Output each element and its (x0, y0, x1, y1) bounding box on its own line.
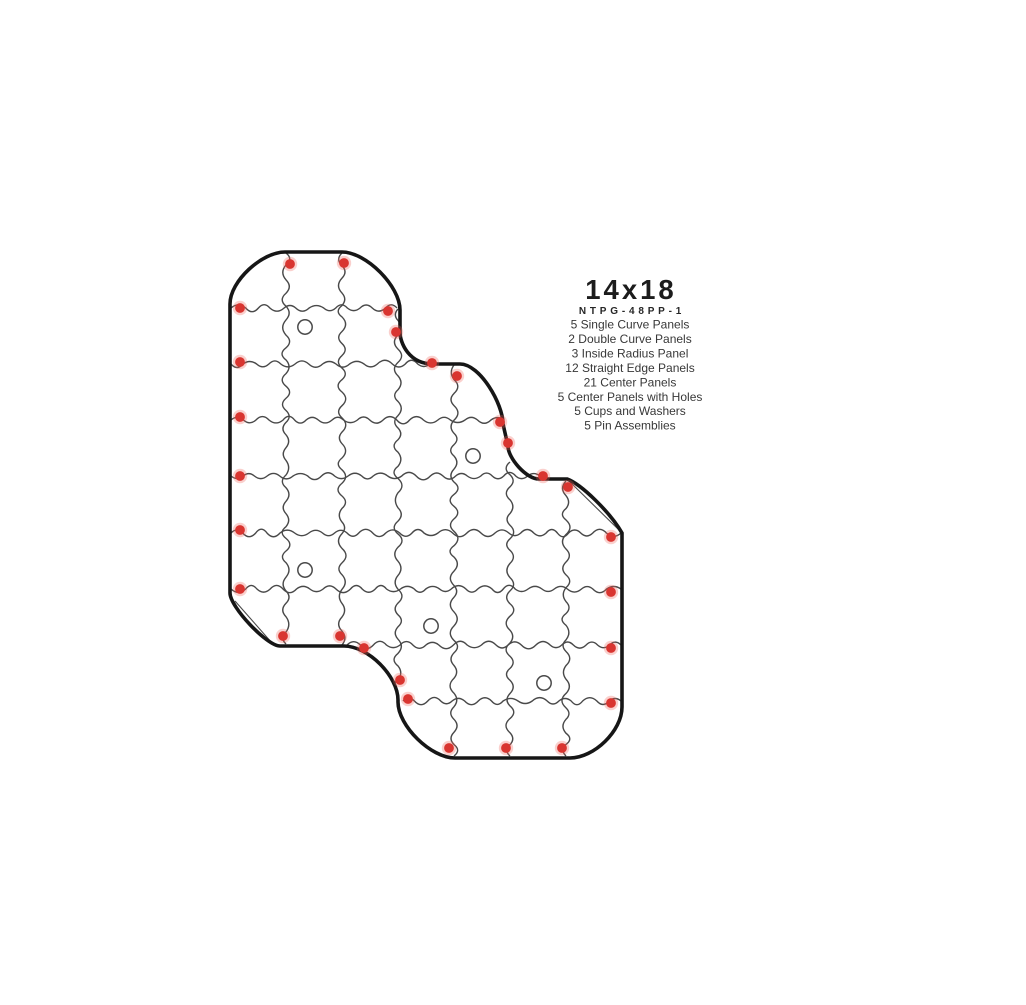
svg-text:14x18: 14x18 (585, 274, 676, 305)
svg-text:NTPG-48PP-1: NTPG-48PP-1 (579, 306, 685, 317)
svg-text:2 Double Curve Panels: 2 Double Curve Panels (568, 332, 691, 346)
svg-text:5 Cups and Washers: 5 Cups and Washers (574, 404, 686, 418)
svg-text:3 Inside Radius Panel: 3 Inside Radius Panel (572, 347, 689, 361)
svg-text:5 Pin Assemblies: 5 Pin Assemblies (584, 419, 675, 433)
svg-text:5 Center Panels with Holes: 5 Center Panels with Holes (558, 390, 703, 404)
svg-text:5 Single Curve Panels: 5 Single Curve Panels (571, 318, 690, 332)
svg-text:12 Straight Edge Panels: 12 Straight Edge Panels (565, 361, 694, 375)
svg-text:21 Center Panels: 21 Center Panels (584, 375, 677, 389)
